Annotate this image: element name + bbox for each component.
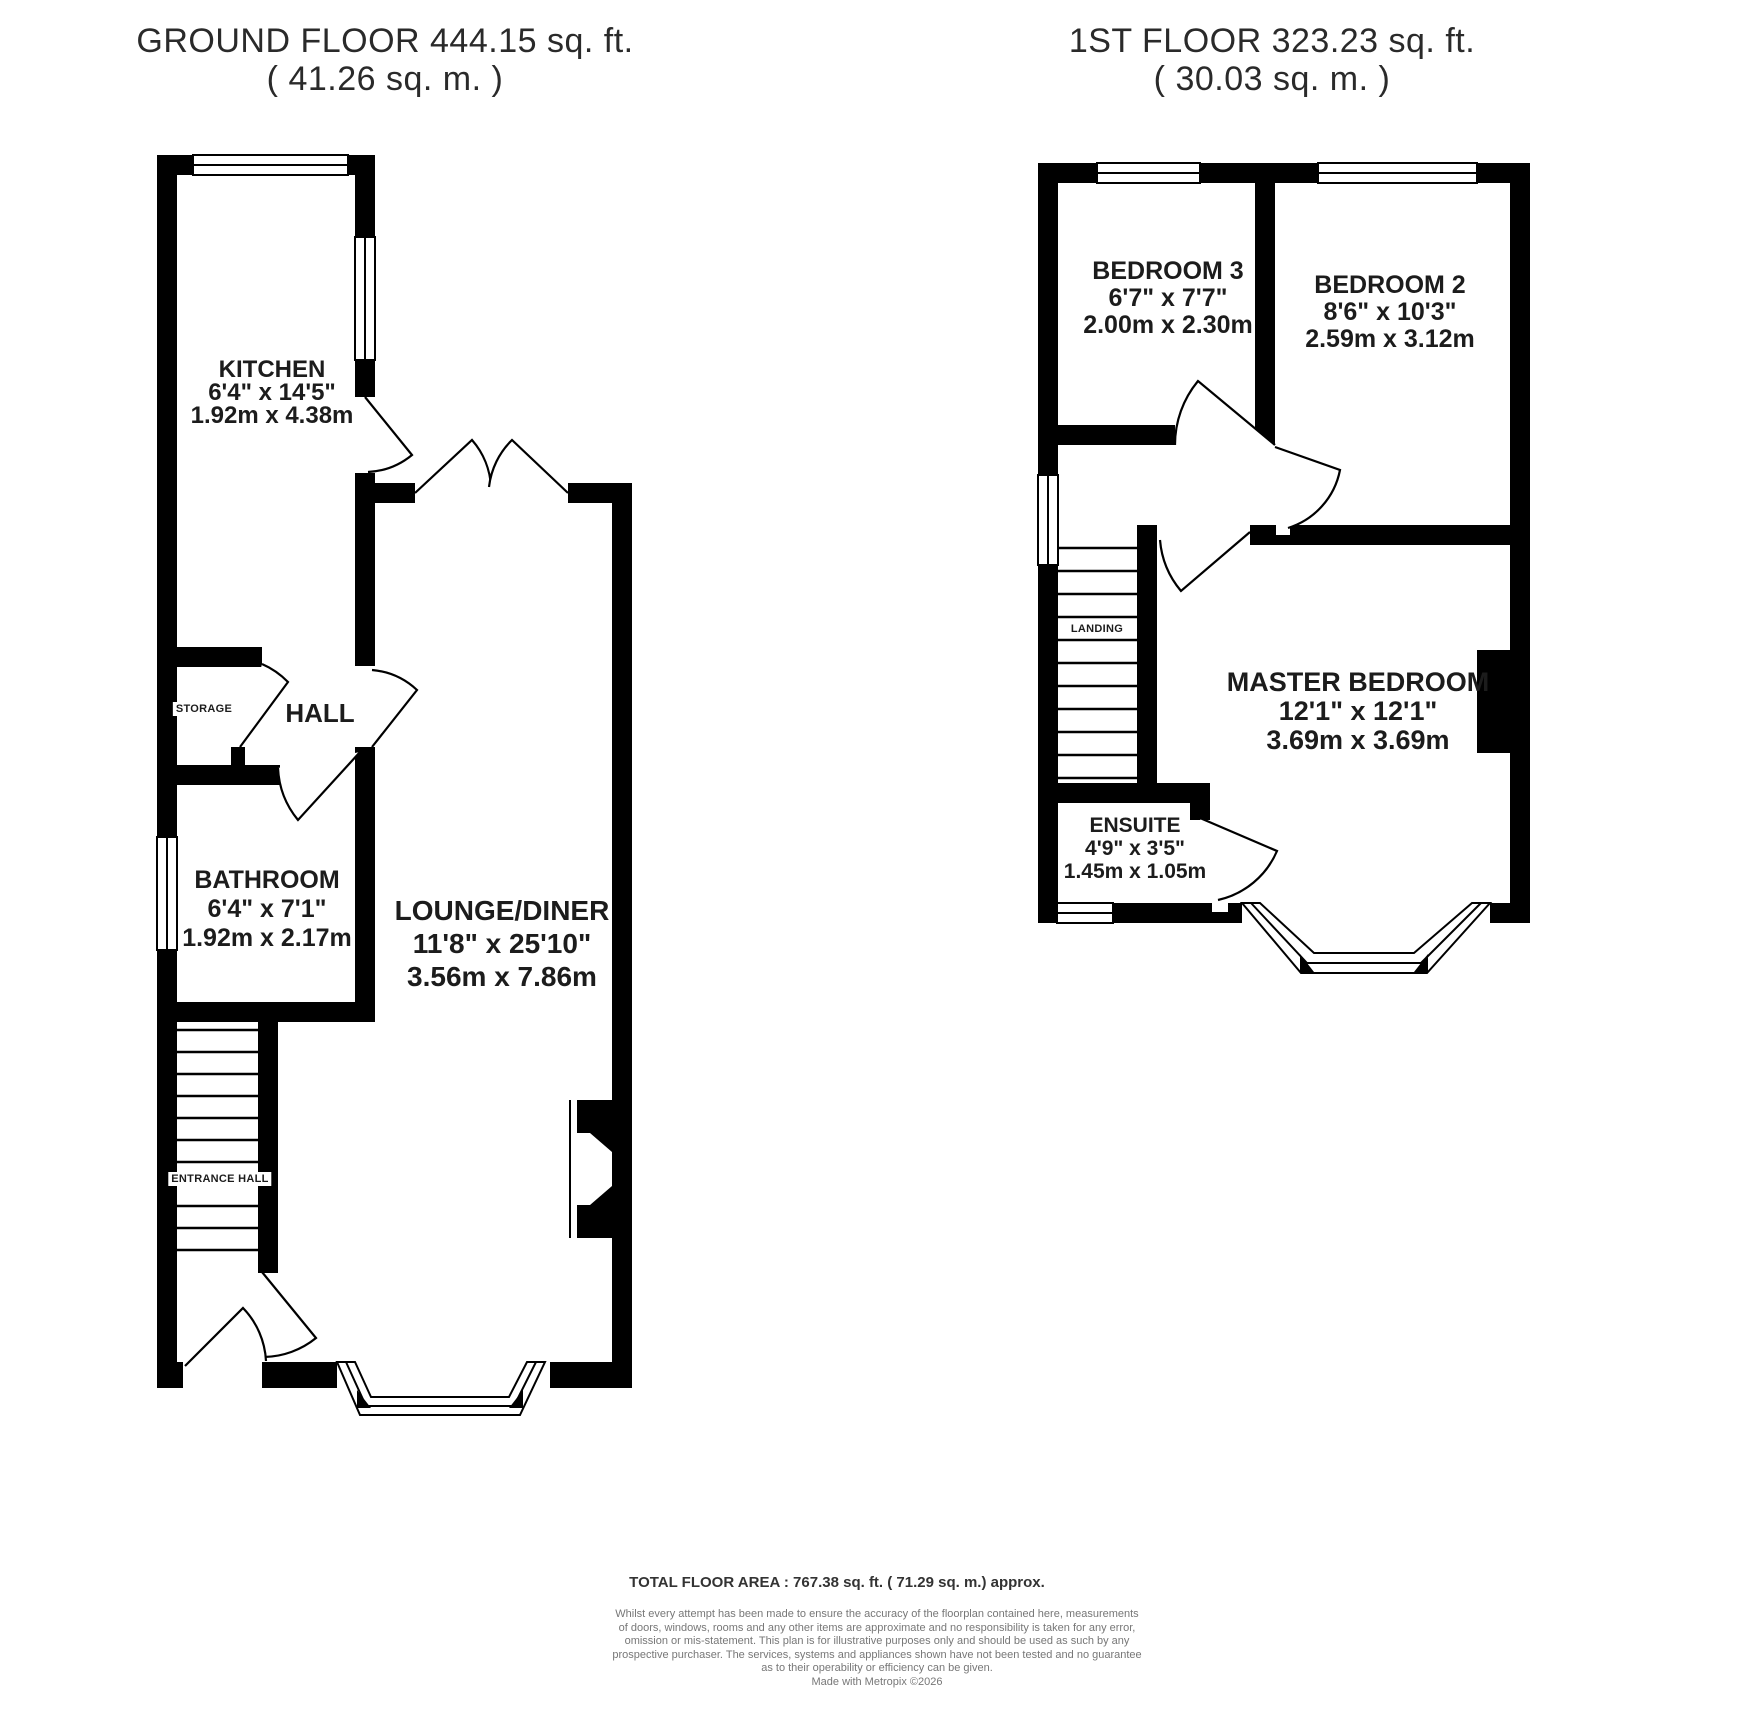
first-floor-title-line: 1ST FLOOR 323.23 sq. ft. <box>1069 22 1475 60</box>
room-dimensions-metric: 1.45m x 1.05m <box>1064 860 1206 883</box>
room-dimensions-metric: 1.92m x 4.38m <box>191 404 354 427</box>
room-name: KITCHEN <box>191 358 354 381</box>
ground-floor-title: GROUND FLOOR 444.15 sq. ft. ( 41.26 sq. … <box>136 22 633 98</box>
room-dimensions-imperial: 8'6" x 10'3" <box>1305 299 1475 326</box>
fireplace <box>570 1100 612 1238</box>
room-name: ENSUITE <box>1064 814 1206 837</box>
room-name: MASTER BEDROOM <box>1227 668 1490 697</box>
room-label-bathroom: BATHROOM 6'4" x 7'1" 1.92m x 2.17m <box>182 866 352 953</box>
room-dimensions-imperial: 6'4" x 7'1" <box>182 895 352 924</box>
room-dimensions-metric: 1.92m x 2.17m <box>182 924 352 953</box>
ensuite-door-icon <box>1200 818 1277 900</box>
bathroom-window-icon <box>157 837 177 950</box>
room-label-entrance-hall: ENTRANCE HALL <box>168 1172 271 1186</box>
total-floor-area: TOTAL FLOOR AREA : 767.38 sq. ft. ( 71.2… <box>629 1574 1045 1591</box>
kitchen-door-icon <box>365 397 412 472</box>
room-dimensions-metric: 2.59m x 3.12m <box>1305 326 1475 353</box>
bedroom2-window-icon <box>1318 163 1477 183</box>
room-label-kitchen: KITCHEN 6'4" x 14'5" 1.92m x 4.38m <box>191 358 354 427</box>
disclaimer-line: of doors, windows, rooms and any other i… <box>612 1622 1141 1636</box>
room-dimensions-imperial: 4'9" x 3'5" <box>1064 837 1206 860</box>
room-label-hall: HALL <box>285 698 354 729</box>
hall-lounge-door-icon <box>372 670 417 747</box>
disclaimer-credit: Made with Metropix ©2026 <box>612 1676 1141 1690</box>
room-label-master-bedroom: MASTER BEDROOM 12'1" x 12'1" 3.69m x 3.6… <box>1227 668 1490 755</box>
master-bay-window-icon <box>1242 903 1490 973</box>
entrance-staircase <box>177 1030 258 1250</box>
french-doors-icon <box>415 440 568 493</box>
first-floor-title: 1ST FLOOR 323.23 sq. ft. ( 30.03 sq. m. … <box>1069 22 1475 98</box>
ground-floor-subtitle: ( 41.26 sq. m. ) <box>136 60 633 98</box>
ground-floor-title-line: GROUND FLOOR 444.15 sq. ft. <box>136 22 633 60</box>
disclaimer-line: omission or mis-statement. This plan is … <box>612 1635 1141 1649</box>
bedroom2-door-icon <box>1275 447 1340 528</box>
floorplan-page: GROUND FLOOR 444.15 sq. ft. ( 41.26 sq. … <box>0 0 1753 1717</box>
room-dimensions-metric: 3.56m x 7.86m <box>395 960 610 993</box>
room-name: BEDROOM 2 <box>1305 272 1475 299</box>
room-label-landing: LANDING <box>1068 622 1126 636</box>
room-dimensions-imperial: 6'4" x 14'5" <box>191 381 354 404</box>
room-label-bedroom3: BEDROOM 3 6'7" x 7'7" 2.00m x 2.30m <box>1083 258 1253 339</box>
entrance-lounge-door-icon <box>262 1272 316 1357</box>
room-label-ensuite: ENSUITE 4'9" x 3'5" 1.45m x 1.05m <box>1064 814 1206 883</box>
ensuite-window-icon <box>1057 903 1113 923</box>
front-door-icon <box>185 1308 266 1366</box>
room-name: BEDROOM 3 <box>1083 258 1253 285</box>
ground-floor-plan <box>157 155 632 1415</box>
room-label-lounge-diner: LOUNGE/DINER 11'8" x 25'10" 3.56m x 7.86… <box>395 894 610 993</box>
stairwell-window-icon <box>1038 475 1058 565</box>
landing-staircase <box>1058 548 1137 778</box>
kitchen-top-window-icon <box>193 155 348 175</box>
room-dimensions-imperial: 12'1" x 12'1" <box>1227 697 1490 726</box>
room-name: LOUNGE/DINER <box>395 894 610 927</box>
disclaimer-line: as to their operability or efficiency ca… <box>612 1662 1141 1676</box>
bedroom3-window-icon <box>1097 163 1200 183</box>
storage-door-icon <box>240 664 288 747</box>
ensuite-door-notch <box>1212 903 1228 912</box>
master-bedroom-door-icon <box>1160 532 1250 591</box>
room-label-bedroom2: BEDROOM 2 8'6" x 10'3" 2.59m x 3.12m <box>1305 272 1475 353</box>
disclaimer-line: Whilst every attempt has been made to en… <box>612 1608 1141 1622</box>
disclaimer-line: prospective purchaser. The services, sys… <box>612 1649 1141 1663</box>
floorplan-drawing <box>0 0 1753 1717</box>
first-floor-subtitle: ( 30.03 sq. m. ) <box>1069 60 1475 98</box>
room-dimensions-metric: 2.00m x 2.30m <box>1083 312 1253 339</box>
room-dimensions-imperial: 11'8" x 25'10" <box>395 927 610 960</box>
room-name: BATHROOM <box>182 866 352 895</box>
disclaimer: Whilst every attempt has been made to en… <box>612 1608 1141 1689</box>
kitchen-side-window-icon <box>355 237 375 360</box>
room-dimensions-metric: 3.69m x 3.69m <box>1227 726 1490 755</box>
room-dimensions-imperial: 6'7" x 7'7" <box>1083 285 1253 312</box>
ground-floor-walls <box>157 155 632 1388</box>
room-label-storage: STORAGE <box>173 702 235 716</box>
bathroom-door-icon <box>278 752 360 820</box>
